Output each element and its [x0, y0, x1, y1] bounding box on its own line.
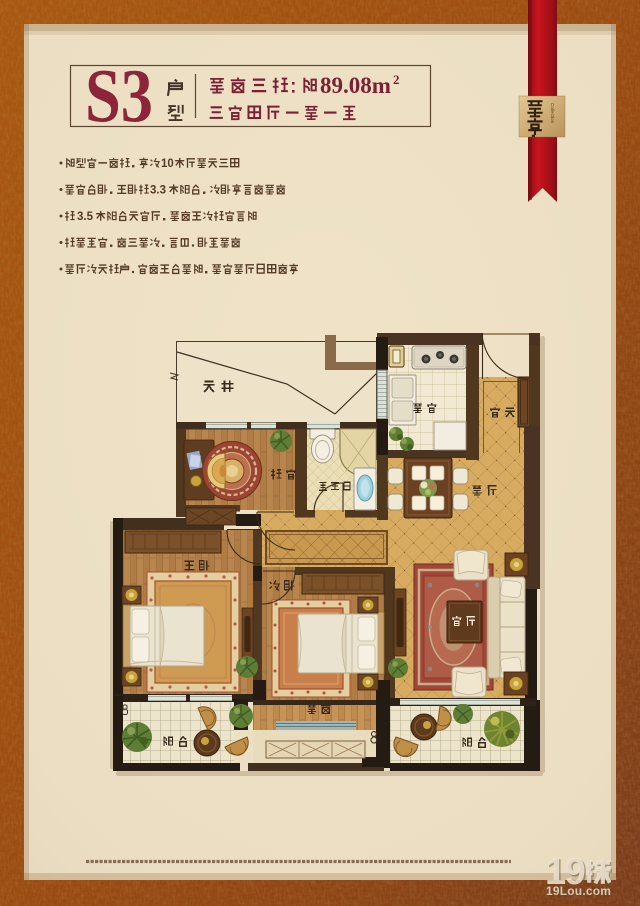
svg-text:S3: S3 — [85, 55, 153, 139]
svg-text:3.3: 3.3 — [150, 185, 166, 197]
svg-text:2: 2 — [393, 72, 400, 87]
svg-text:19Lou.com: 19Lou.com — [546, 884, 611, 898]
svg-text:Collection: Collection — [550, 103, 555, 124]
svg-text:3.5: 3.5 — [77, 211, 94, 223]
svg-text:10: 10 — [161, 158, 174, 170]
svg-text:89.08m: 89.08m — [320, 73, 391, 98]
